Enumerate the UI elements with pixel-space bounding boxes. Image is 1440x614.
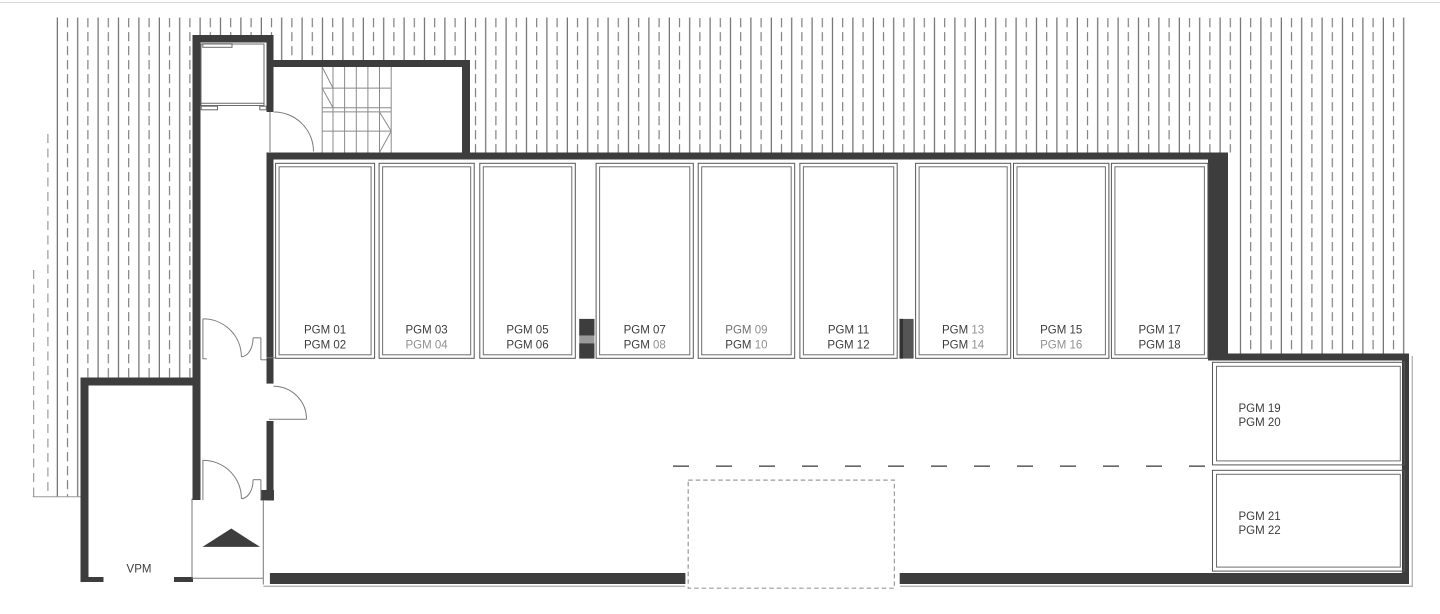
svg-text:PGM 08: PGM 08 — [624, 340, 666, 352]
svg-text:VPM: VPM — [127, 564, 152, 576]
svg-text:PGM 07: PGM 07 — [624, 325, 666, 337]
svg-text:PGM 18: PGM 18 — [1139, 340, 1181, 352]
svg-text:PGM 22: PGM 22 — [1239, 525, 1281, 537]
svg-text:PGM 13: PGM 13 — [942, 325, 984, 337]
svg-text:PGM 17: PGM 17 — [1139, 325, 1181, 337]
svg-text:PGM 10: PGM 10 — [725, 340, 767, 352]
svg-text:PGM 21: PGM 21 — [1239, 511, 1281, 523]
svg-text:PGM 20: PGM 20 — [1239, 417, 1281, 429]
svg-text:PGM 03: PGM 03 — [406, 325, 448, 337]
svg-text:PGM 19: PGM 19 — [1239, 403, 1281, 415]
svg-text:PGM 02: PGM 02 — [304, 340, 346, 352]
svg-text:PGM 04: PGM 04 — [406, 340, 449, 352]
svg-text:PGM 14: PGM 14 — [942, 340, 985, 352]
svg-text:PGM 16: PGM 16 — [1040, 340, 1082, 352]
svg-text:PGM 01: PGM 01 — [304, 325, 346, 337]
svg-text:PGM 05: PGM 05 — [506, 325, 548, 337]
svg-text:PGM 06: PGM 06 — [506, 340, 548, 352]
svg-text:PGM 11: PGM 11 — [828, 325, 869, 337]
svg-text:PGM 09: PGM 09 — [725, 325, 767, 337]
svg-text:PGM 12: PGM 12 — [827, 340, 869, 352]
svg-text:PGM 15: PGM 15 — [1040, 325, 1082, 337]
